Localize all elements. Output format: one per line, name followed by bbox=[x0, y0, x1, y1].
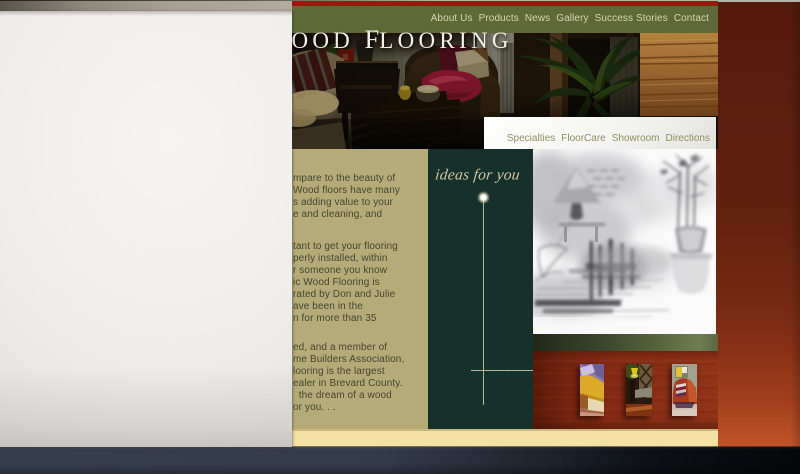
svg-text:ideas for you: ideas for you bbox=[434, 167, 521, 184]
